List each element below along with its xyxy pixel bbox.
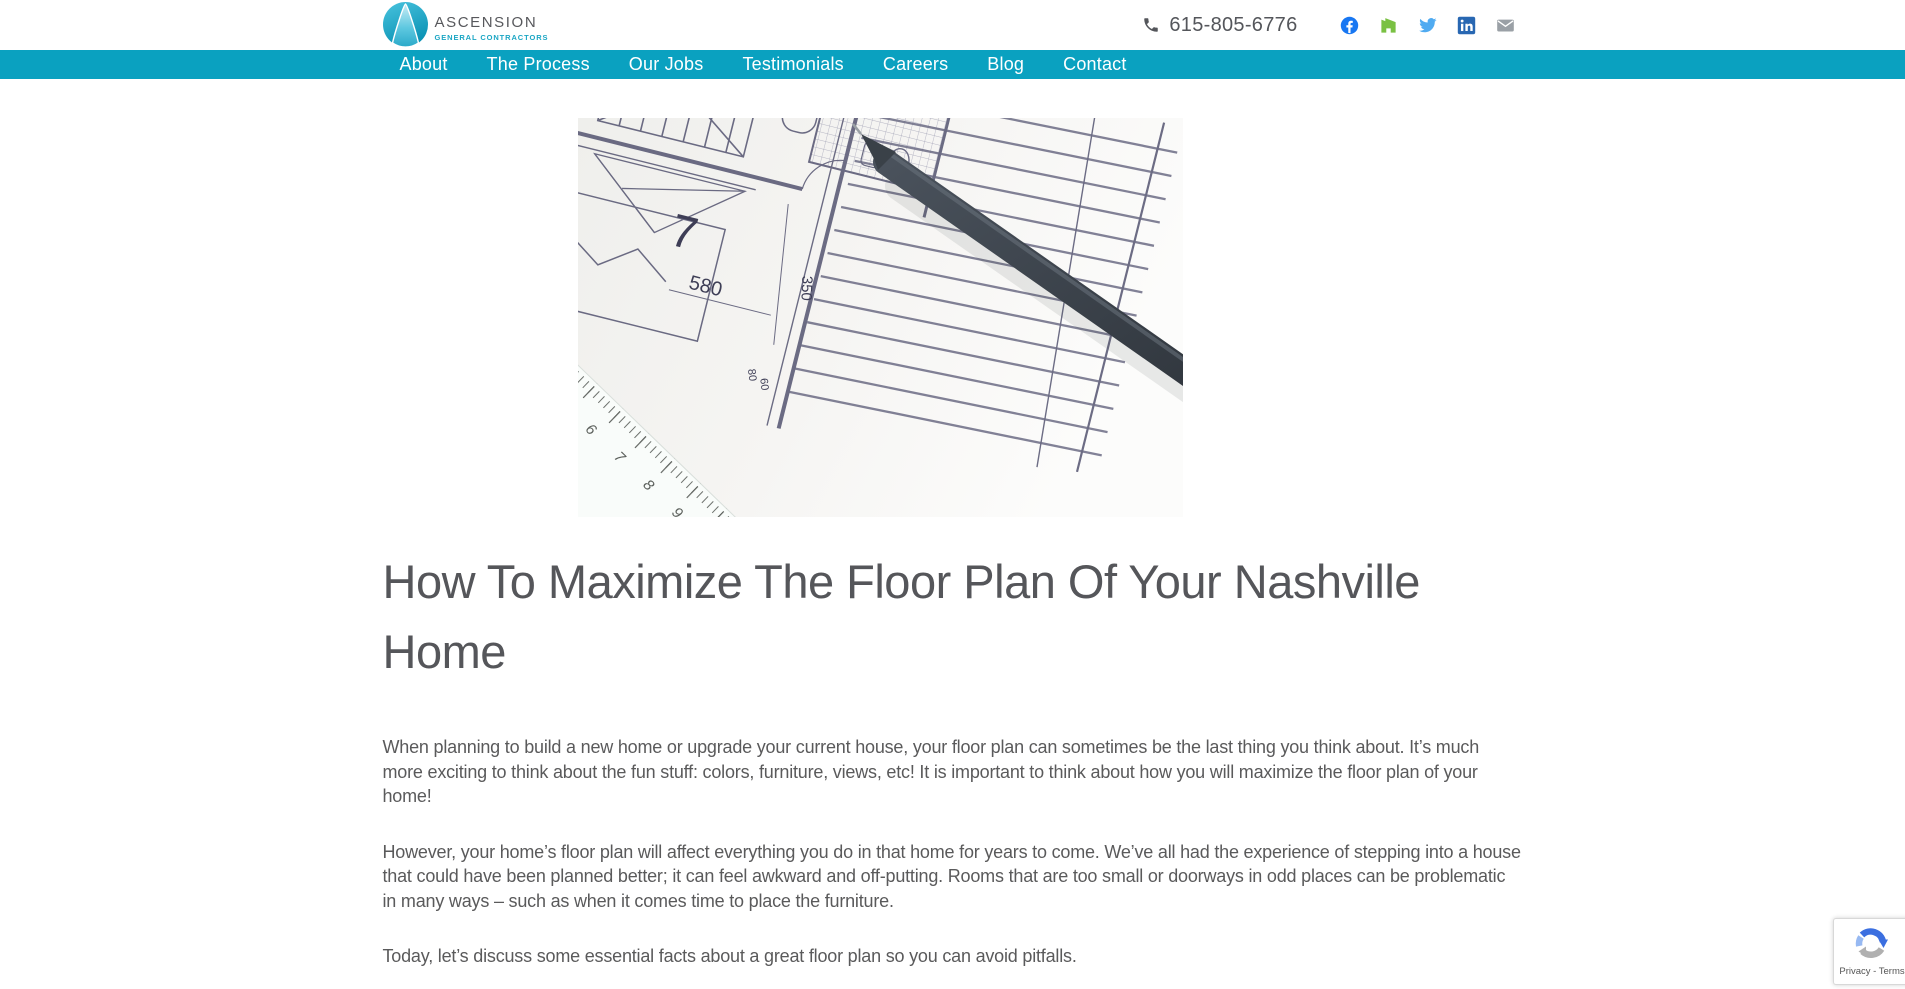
article-body: When planning to build a new home or upg… xyxy=(383,735,1523,969)
hero-image: 7 580 350 80 60 5 6 7 8 9 xyxy=(578,118,1183,517)
houzz-icon xyxy=(1379,16,1398,35)
linkedin-link[interactable] xyxy=(1457,16,1476,35)
logo-link[interactable]: ASCENSION GENERAL CONTRACTORS xyxy=(383,2,549,47)
email-link[interactable] xyxy=(1496,16,1515,35)
main-nav: About The Process Our Jobs Testimonials … xyxy=(0,50,1905,79)
brand-name: ASCENSION xyxy=(435,15,549,30)
nav-item-blog[interactable]: Blog xyxy=(987,50,1024,79)
facebook-link[interactable] xyxy=(1340,16,1359,35)
svg-text:350: 350 xyxy=(797,275,815,301)
nav-item-testimonials[interactable]: Testimonials xyxy=(742,50,843,79)
facebook-icon xyxy=(1340,16,1359,35)
article-paragraph-2: However, your home’s floor plan will aff… xyxy=(383,840,1523,914)
nav-item-the-process[interactable]: The Process xyxy=(487,50,590,79)
nav-item-careers[interactable]: Careers xyxy=(883,50,948,79)
nav-item-contact[interactable]: Contact xyxy=(1063,50,1126,79)
houzz-link[interactable] xyxy=(1379,16,1398,35)
privacy-terms-link[interactable]: Privacy - Terms xyxy=(1834,966,1905,977)
phone-link[interactable]: 615-805-6776 xyxy=(1142,14,1297,37)
linkedin-icon xyxy=(1457,16,1476,35)
svg-text:60: 60 xyxy=(757,378,770,391)
article-title: How To Maximize The Floor Plan Of Your N… xyxy=(383,547,1523,687)
svg-text:80: 80 xyxy=(745,368,758,381)
article-paragraph-3: Today, let’s discuss some essential fact… xyxy=(383,944,1523,969)
nav-item-our-jobs[interactable]: Our Jobs xyxy=(629,50,704,79)
recaptcha-icon xyxy=(1854,926,1888,960)
twitter-icon xyxy=(1418,16,1437,35)
phone-number: 615-805-6776 xyxy=(1169,14,1297,37)
social-links xyxy=(1340,16,1515,35)
article-main: 7 580 350 80 60 5 6 7 8 9 xyxy=(383,118,1523,969)
email-icon xyxy=(1496,16,1515,35)
phone-icon xyxy=(1142,16,1160,34)
nav-item-about[interactable]: About xyxy=(400,50,448,79)
brand-tagline: GENERAL CONTRACTORS xyxy=(435,33,549,42)
article-paragraph-1: When planning to build a new home or upg… xyxy=(383,735,1523,809)
recaptcha-badge[interactable]: Privacy - Terms xyxy=(1833,918,1905,985)
site-header: ASCENSION GENERAL CONTRACTORS 615-805-67… xyxy=(0,0,1905,50)
ascension-logo-icon xyxy=(383,2,428,47)
twitter-link[interactable] xyxy=(1418,16,1437,35)
